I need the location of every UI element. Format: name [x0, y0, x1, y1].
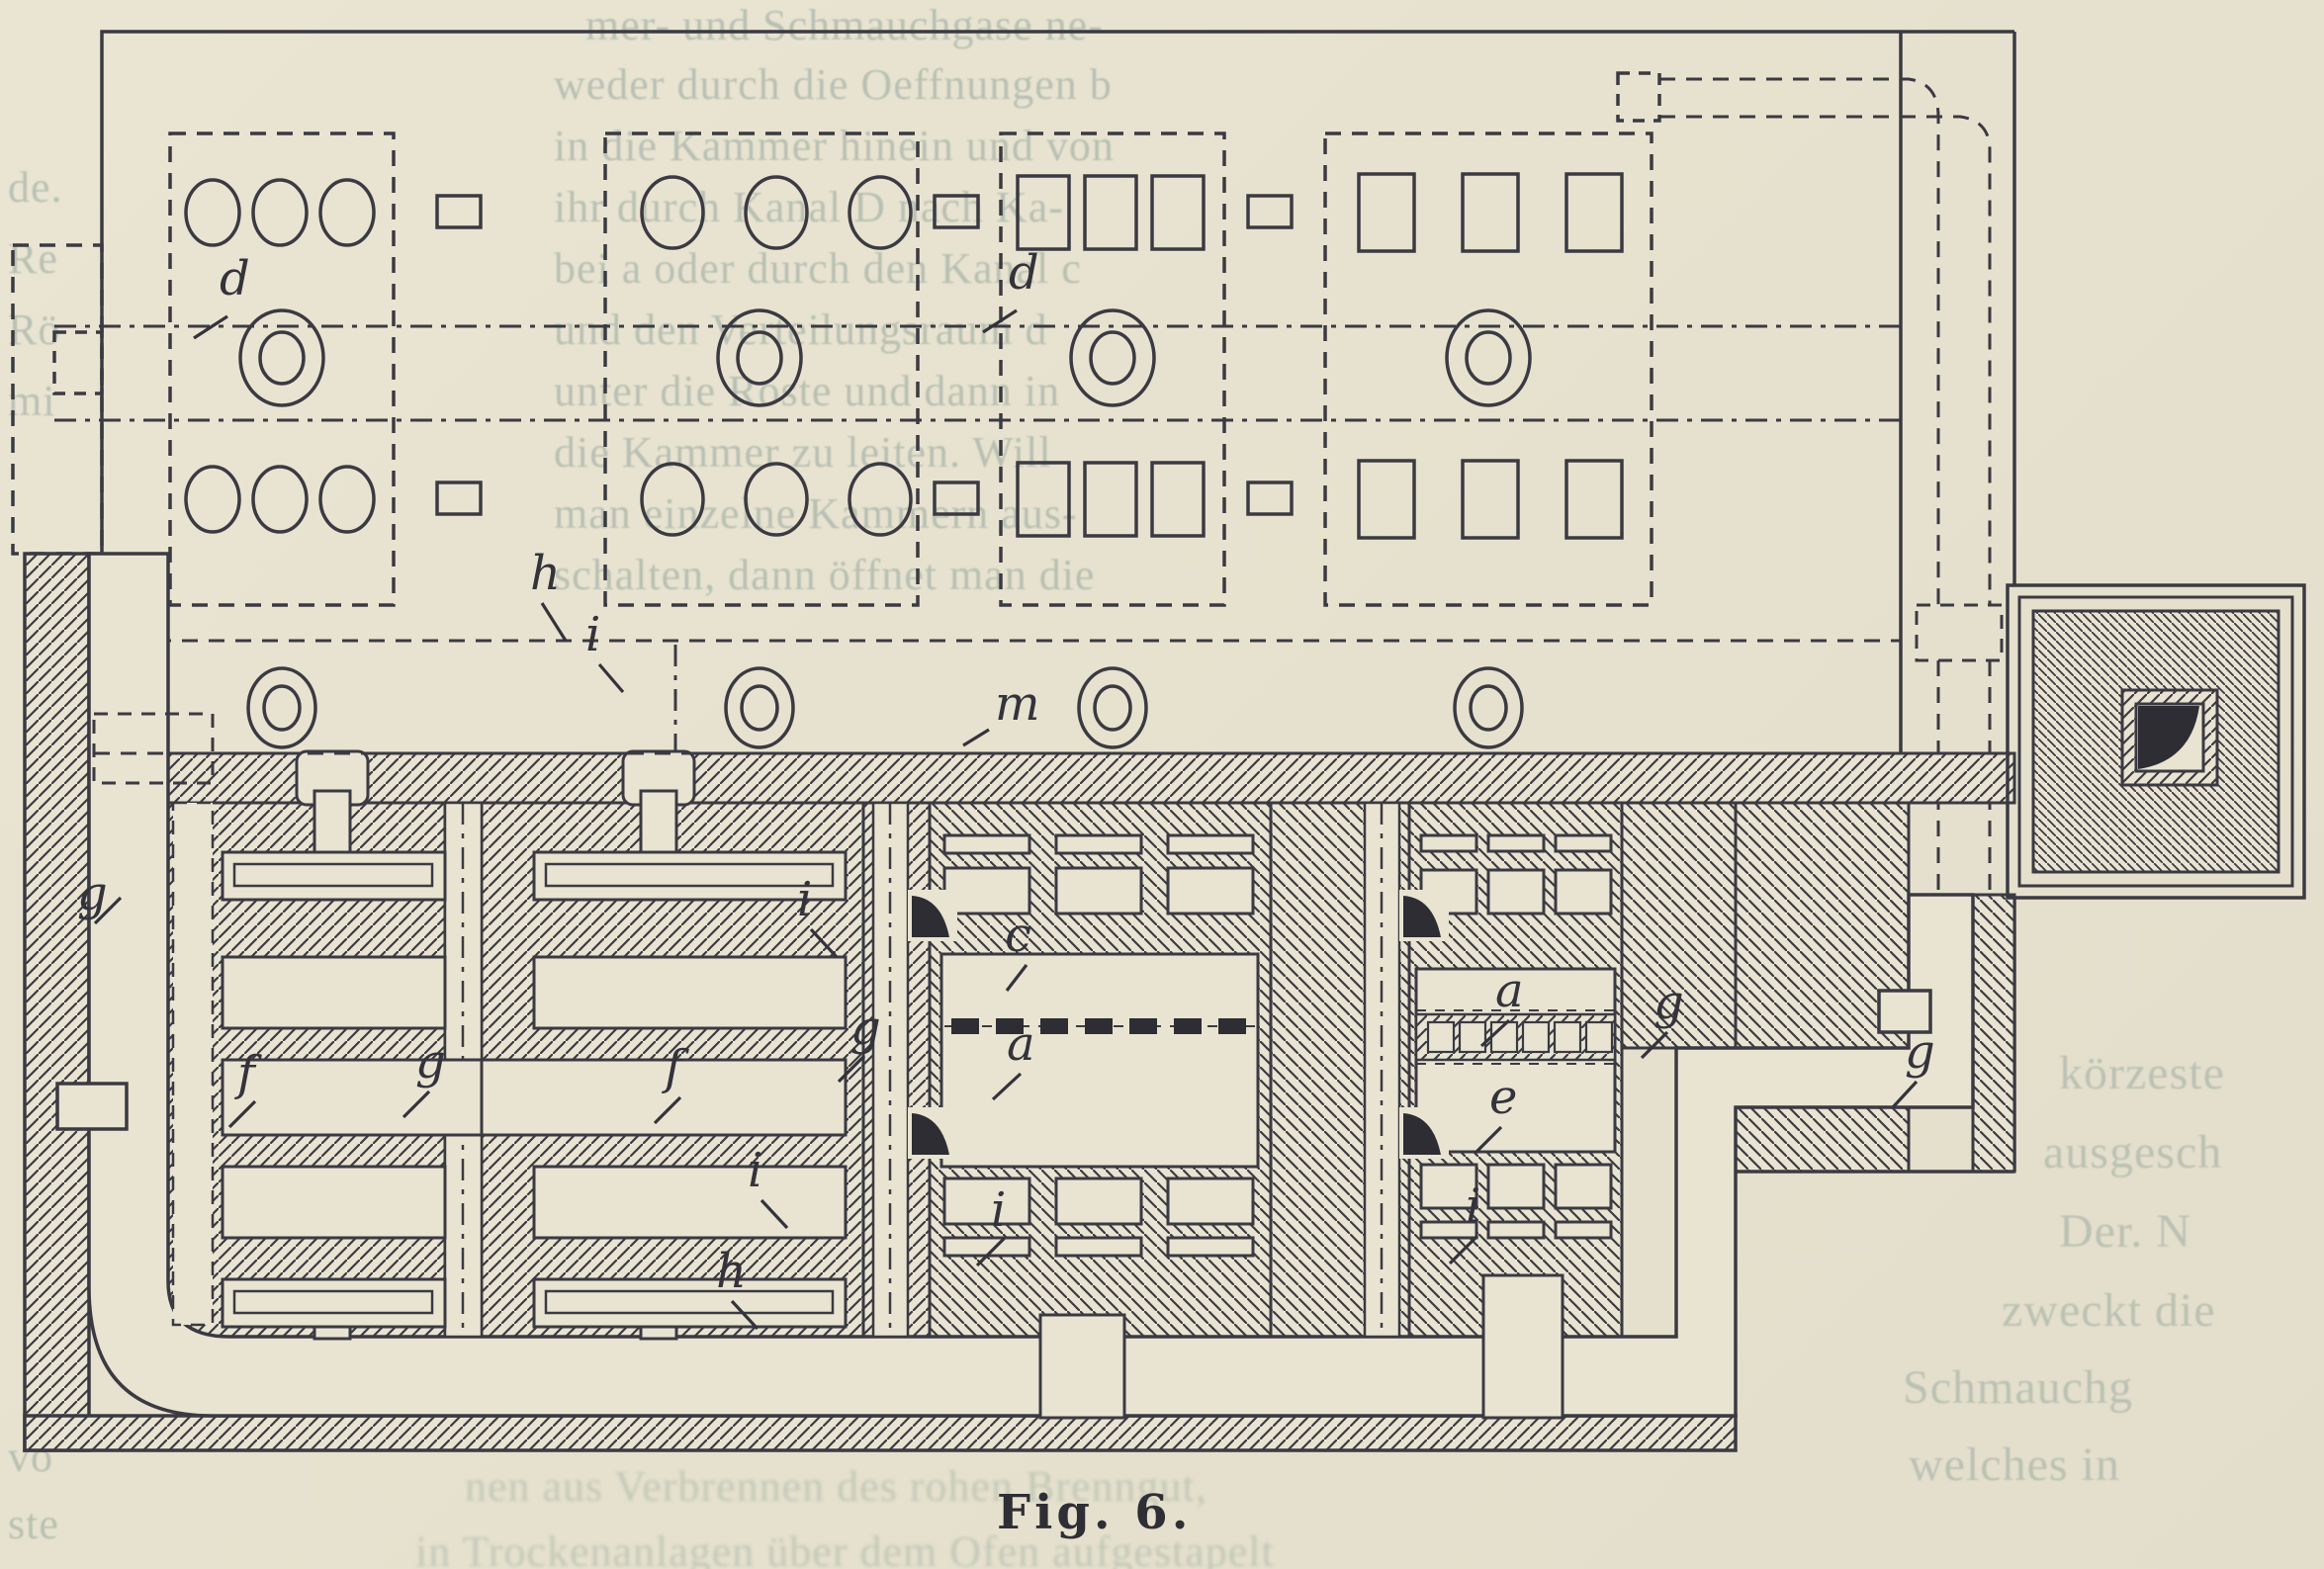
- part-label-i: i: [585, 611, 600, 658]
- part-label-g: g: [1654, 979, 1684, 1026]
- part-label-a: a: [1495, 967, 1524, 1014]
- part-label-f: f: [665, 1044, 682, 1091]
- part-label-m: m: [995, 680, 1040, 728]
- part-label-g: g: [77, 870, 108, 917]
- figure-caption: Fig. 6.: [997, 1485, 1192, 1540]
- part-label-d: d: [1009, 249, 1039, 297]
- part-label-i: i: [991, 1186, 1006, 1234]
- part-label-e: e: [1489, 1074, 1517, 1121]
- part-label-c: c: [1005, 912, 1031, 959]
- scanned-page: mer- und Schmauchgase ne- weder durch di…: [0, 0, 2324, 1569]
- part-label-g: g: [850, 1004, 881, 1052]
- part-label-i: i: [748, 1147, 762, 1194]
- part-label-g: g: [415, 1038, 446, 1086]
- part-label-g: g: [1905, 1028, 1935, 1076]
- part-label-i: i: [797, 876, 812, 923]
- chimney: [2008, 585, 2304, 898]
- kiln-plan-drawing: [0, 0, 2324, 1569]
- part-label-a: a: [1007, 1020, 1035, 1068]
- part-label-h: h: [716, 1248, 747, 1295]
- part-label-f: f: [237, 1050, 255, 1097]
- part-label-i: i: [1466, 1182, 1480, 1230]
- part-label-h: h: [530, 550, 561, 597]
- part-label-d: d: [220, 255, 250, 303]
